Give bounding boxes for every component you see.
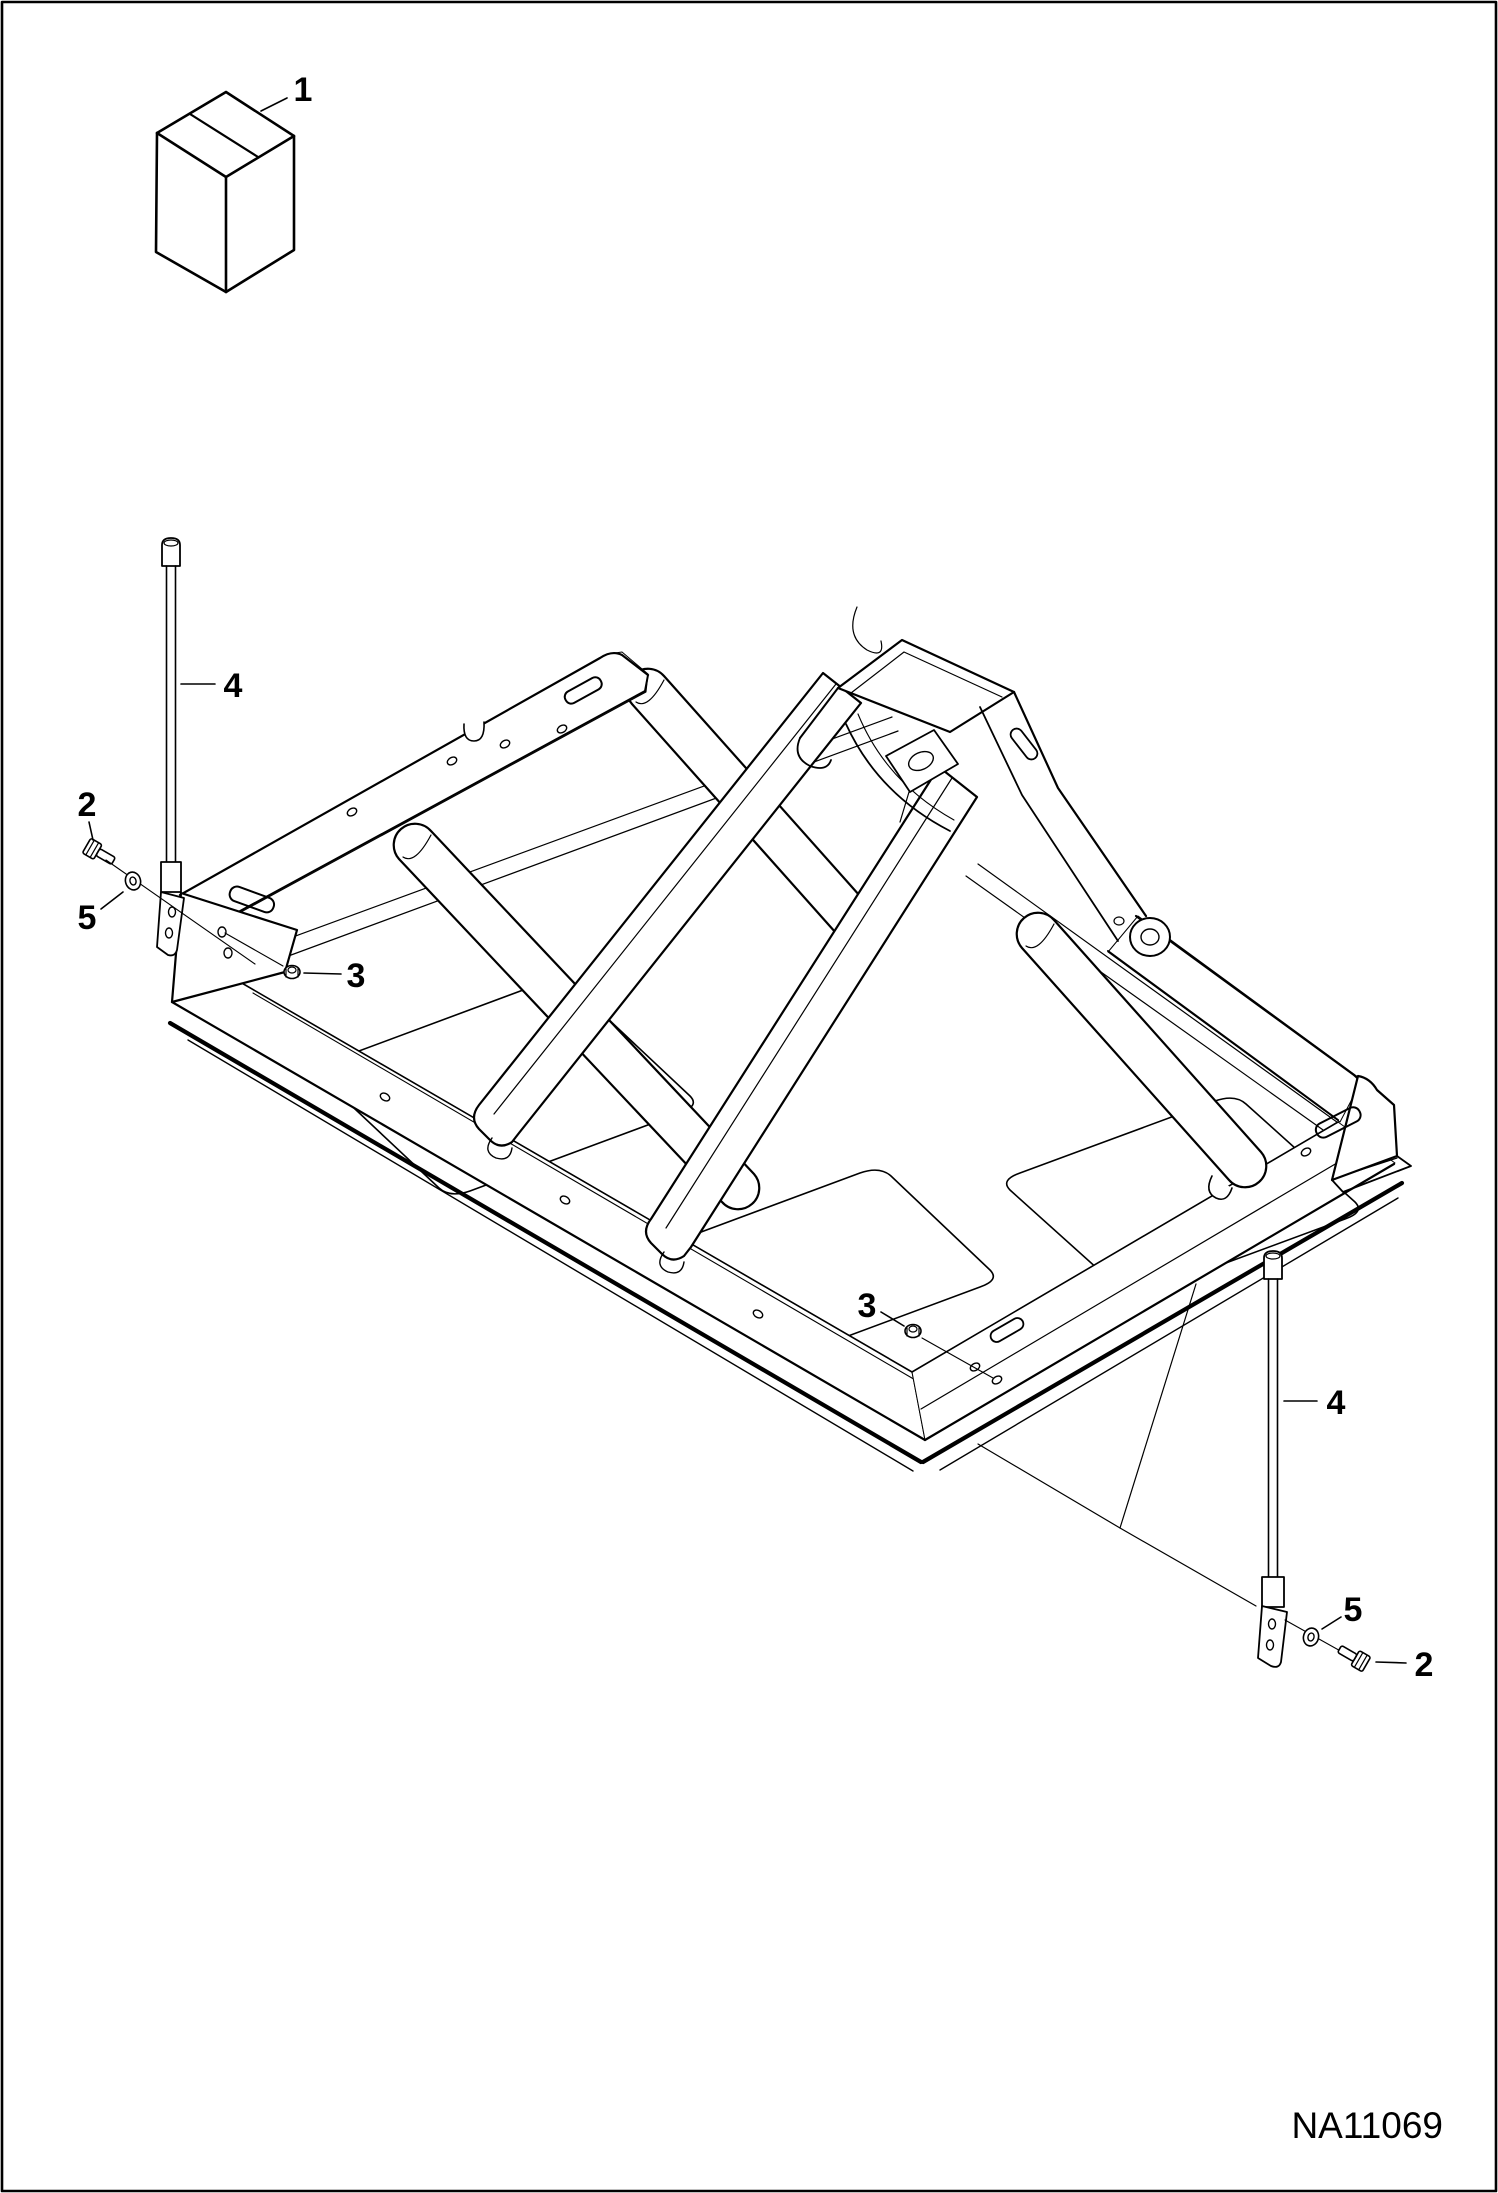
callout-2-right: 2 [1415,1646,1434,1684]
latch-hook [853,607,882,653]
pivot-bushing [1130,918,1170,956]
callout-5-left: 5 [78,899,97,937]
locator-line [978,1444,1256,1606]
rear-lip-line [966,876,1340,1142]
exploded-parts-drawing: 1 [0,0,1498,2193]
callout-2-left: 2 [78,786,97,824]
drawing-code: NA11069 [1291,2105,1443,2146]
callout-1-leader [261,98,287,111]
left-end-plate [172,885,297,1002]
callout-3-bottom-leader [881,1312,904,1326]
left-rail [180,652,648,930]
callout-4-left: 4 [224,667,243,705]
callout-5-left-leader [101,892,123,909]
callout-2-left-leader [89,822,93,840]
callout-5-right: 5 [1344,1591,1363,1629]
nut-left [284,966,300,979]
frame [170,607,1411,1471]
kit-box [156,92,294,292]
callout-2-right-leader [1376,1662,1406,1663]
edge-notch [464,722,484,741]
callout-4-right: 4 [1327,1384,1346,1422]
bolt-right [1335,1642,1370,1672]
parts-diagram-page: 1 [0,0,1498,2193]
nut-bottom [905,1325,921,1338]
callout-3-left-leader [304,973,341,974]
callout-1: 1 [294,71,313,109]
callout-3-left: 3 [347,957,366,995]
stand-rod-right [1258,1251,1317,1667]
locator-line [1120,1284,1196,1528]
callout-3-bottom: 3 [858,1287,877,1325]
rod-bracket [1258,1606,1287,1667]
callout-5-right-leader [1322,1617,1341,1629]
washer-right [1301,1626,1320,1647]
